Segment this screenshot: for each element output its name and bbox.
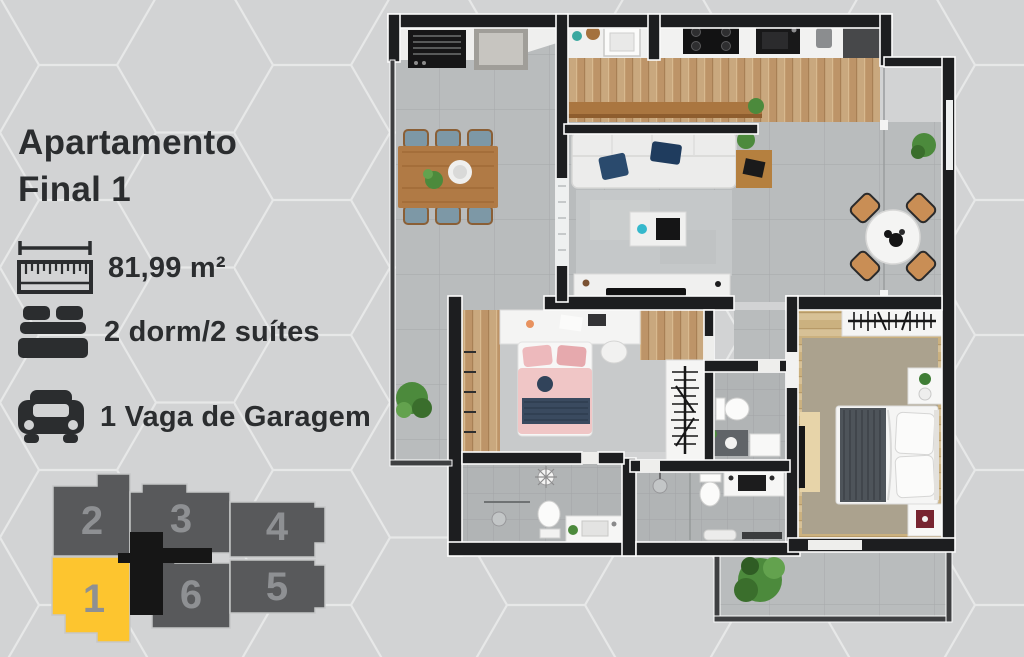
page-title: Apartamento Final 1 xyxy=(18,120,237,214)
spec-area: 81,99 m² xyxy=(16,240,226,296)
lavabo xyxy=(707,372,786,460)
unit-1-number: 1 xyxy=(83,577,105,621)
bath-bench xyxy=(704,530,736,540)
master-suite xyxy=(798,306,942,538)
balcony xyxy=(714,548,952,622)
dining-table xyxy=(398,130,498,224)
parapet xyxy=(390,60,395,466)
info-panel: Apartamento Final 1 81,99 m² xyxy=(0,0,385,465)
laundry-vase xyxy=(572,31,582,41)
nightstand-top xyxy=(908,368,942,404)
shower-head xyxy=(492,512,506,526)
unit-key-plan: 2 3 4 1 6 5 xyxy=(40,465,340,657)
terrace-cabinet xyxy=(474,28,528,70)
sofa xyxy=(572,132,736,188)
unit-5-number: 5 xyxy=(266,565,288,609)
spec-garage: 1 Vaga de Garagem xyxy=(16,388,371,446)
ruler-icon xyxy=(16,240,94,296)
nightstand-bottom xyxy=(908,504,942,536)
vanity-suite-1 xyxy=(566,516,622,542)
toilet-master xyxy=(700,474,721,506)
tv xyxy=(606,288,686,296)
unit-6-number: 6 xyxy=(180,573,202,617)
unit-3-number: 3 xyxy=(170,497,192,541)
suite-1 xyxy=(462,310,704,460)
bathroom-master xyxy=(636,470,786,542)
toilet-suite-1 xyxy=(538,501,560,538)
parapet xyxy=(390,460,452,466)
vanity-master xyxy=(724,470,784,496)
bed-suite-1 xyxy=(518,342,592,436)
master-tv-cabinet xyxy=(798,412,820,492)
bedrooms-label: 2 dorm/2 suítes xyxy=(104,316,320,349)
kitchen-sink xyxy=(756,26,800,54)
toilet-lavabo xyxy=(716,398,749,420)
bed-master xyxy=(836,406,939,504)
garage-label: 1 Vaga de Garagem xyxy=(100,401,371,434)
spec-bedrooms: 2 dorm/2 suítes xyxy=(16,306,320,358)
pendant-lamp xyxy=(535,466,557,488)
title-line-2: Final 1 xyxy=(18,167,237,214)
marketing-flyer: Apartamento Final 1 81,99 m² xyxy=(0,0,1024,657)
floor-plan xyxy=(385,0,1024,657)
car-icon xyxy=(16,388,86,446)
unit-4-number: 4 xyxy=(266,505,289,549)
unit-2-number: 2 xyxy=(81,499,103,543)
bbq-grill xyxy=(408,30,466,68)
tv-console xyxy=(574,274,730,298)
area-label: 81,99 m² xyxy=(108,252,226,285)
coffee-table xyxy=(630,212,686,246)
shower-head xyxy=(653,479,667,493)
closet-rack-suite-1 xyxy=(666,360,704,460)
desk-chair xyxy=(601,341,627,363)
bathroom-suite-1 xyxy=(462,464,622,542)
laundry xyxy=(568,24,648,60)
coffee-machine xyxy=(816,28,832,48)
side-table xyxy=(736,150,772,188)
title-line-1: Apartamento xyxy=(18,120,237,167)
bed-icon xyxy=(16,306,90,358)
